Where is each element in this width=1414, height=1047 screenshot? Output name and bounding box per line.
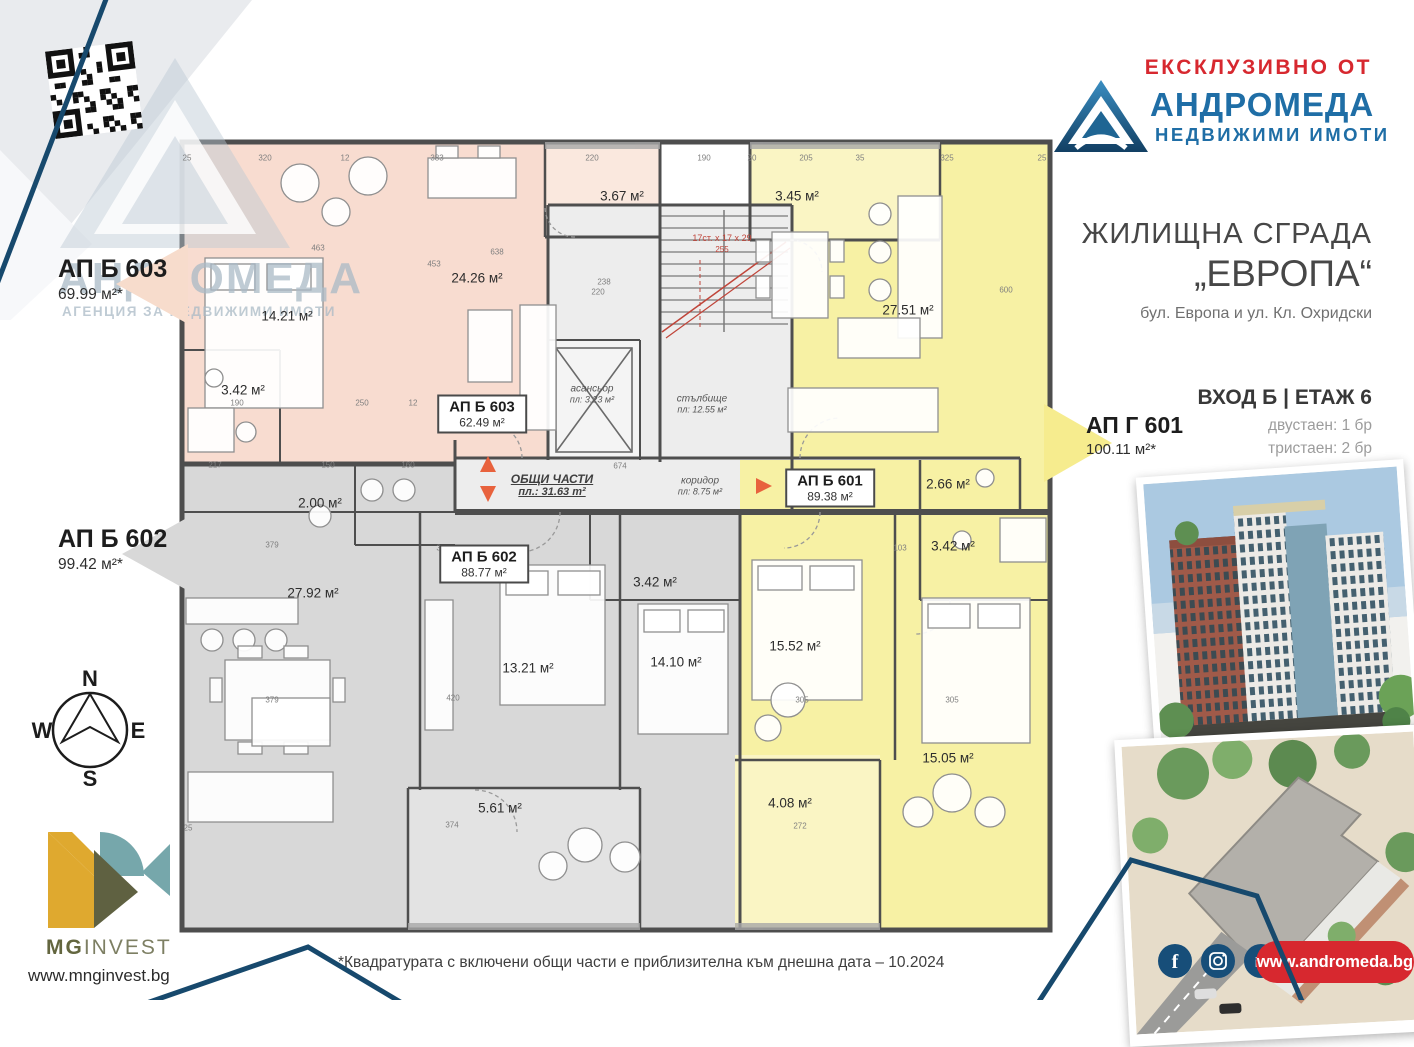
dimension-label: 320 [258,154,271,163]
room-area-label: 5.61 м² [478,801,522,816]
mginvest-logo [48,830,170,930]
dimension-label: 103 [893,544,906,553]
dimension-label: 420 [446,694,459,703]
facebook-icon[interactable]: f [1158,944,1192,978]
stair-dim-text: 255 [692,245,751,255]
callout-id: АП Б 602 [58,525,167,554]
mginvest-name-light: INVEST [84,936,172,959]
plan-apartment-box: АП Б 60189.38 м² [785,469,875,508]
flyer-page: { "branding": { "exclusive_label": "ЕКСК… [0,0,1414,1000]
room-area-label: 15.52 м² [769,639,820,654]
common-areas-value: пл.: 31.63 m² [511,486,593,498]
svg-text:f: f [1172,951,1179,973]
stair-note-text: 17ст. х 17 х 29 [692,233,751,245]
exclusive-label: ЕКСКЛУЗИВНО ОТ [1060,56,1372,80]
dimension-label: 150 [321,461,334,470]
room-area-label: 13.21 м² [502,661,553,676]
dimension-label: 305 [945,696,958,705]
svg-text:E: E [131,718,146,743]
dimension-label: 20 [748,154,757,163]
room-area-label: 2.66 м² [926,477,970,492]
stairs-area: пл: 12.55 м² [677,405,727,415]
project-address: бул. Европа и ул. Кл. Охридски [1040,305,1372,323]
room-area-label: 24.26 м² [451,271,502,286]
dimension-label: 305 [795,696,808,705]
plan-apartment-id: АП Б 602 [451,549,517,566]
room-area-label: 14.21 м² [261,309,312,324]
mginvest-name: MGINVEST [46,936,172,960]
dimension-label: 205 [799,154,812,163]
callout-id: АП Б 603 [58,255,167,284]
room-area-label: 27.51 м² [882,303,933,318]
elevator-name: асансьор [570,384,614,395]
floor-plan [175,122,1060,937]
building-render-street-view [1143,466,1414,767]
room-area-label: 3.42 м² [633,575,677,590]
dimension-label: 272 [793,822,806,831]
dimension-label: 250 [355,399,368,408]
instagram-icon[interactable] [1201,944,1235,978]
dimension-label: 190 [697,154,710,163]
dimension-label: 674 [613,462,626,471]
corridor-area: пл: 8.75 м² [678,487,722,497]
dimension-label: 160 [401,461,414,470]
dimension-label: 190 [230,399,243,408]
corridor-name: коридор [678,476,722,487]
mginvest-website[interactable]: www.mnginvest.bg [28,966,170,986]
agency-name: АНДРОМЕДА [1150,86,1374,124]
dimension-label: 638 [490,248,503,257]
building-title: ЖИЛИЩНА СГРАДА [1040,218,1372,251]
svg-text:S: S [83,766,98,788]
agency-website-pill[interactable]: www.andromeda.bg [1256,941,1414,983]
room-area-label: 14.10 м² [650,655,701,670]
corridor-label: коридор пл: 8.75 м² [678,476,722,497]
apartment-callout-b602: АП Б 602 99.42 м²* [58,525,167,574]
plan-apartment-box: АП Б 60288.77 м² [439,545,529,584]
dimension-label: 25 [1038,154,1047,163]
dimension-label: 463 [311,244,324,253]
dimension-label: 238 [597,278,610,287]
dimension-label: 217 [208,461,221,470]
dimension-label: 220 [591,288,604,297]
room-area-label: 15.05 м² [922,751,973,766]
andromeda-logo-icon [1054,80,1148,160]
callout-area: 69.99 м²* [58,286,167,304]
elevator-label: асансьор пл: 3.23 м² [570,384,614,405]
plan-apartment-box: АП Б 60362.49 м² [437,395,527,434]
plan-apartment-area: 89.38 м² [797,490,863,504]
dimension-label: 379 [265,541,278,550]
elevator-area: пл: 3.23 м² [570,395,614,405]
room-area-label: 3.42 м² [221,383,265,398]
project-title-block: ЖИЛИЩНА СГРАДА „ЕВРОПА“ бул. Европа и ул… [1040,218,1372,323]
dimension-label: 12 [409,399,418,408]
room-area-label: 4.08 м² [768,796,812,811]
room-area-label: 27.92 м² [287,586,338,601]
compass-rose: N E S W [30,668,150,788]
building-render-photo-aerial [1114,724,1414,1047]
common-areas-title: ОБЩИ ЧАСТИ [511,472,593,486]
room-area-label: 2.00 м² [298,496,342,511]
stair-count-note: 17ст. х 17 х 29 255 [692,233,751,255]
svg-text:N: N [82,668,98,691]
dimension-label: 383 [430,154,443,163]
dimension-label: 35 [856,154,865,163]
dimension-label: 379 [265,696,278,705]
area-disclaimer: *Квадратурата с включени общи части е пр… [338,954,944,972]
plan-apartment-id: АП Б 601 [797,473,863,490]
dimension-label: 453 [427,260,440,269]
common-areas-label: ОБЩИ ЧАСТИ пл.: 31.63 m² [511,472,593,498]
stairs-name: стълбище [677,394,727,405]
svg-text:W: W [32,718,53,743]
agency-tagline: НЕДВИЖИМИ ИМОТИ [1155,124,1390,146]
dimension-label: 325 [940,154,953,163]
building-name: „ЕВРОПА“ [1040,253,1372,295]
stairs-label: стълбище пл: 12.55 м² [677,394,727,415]
dimension-label: 220 [585,154,598,163]
apartment-callout-g601: АП Г 601 100.11 м²* [1086,412,1183,458]
dimension-label: 12 [341,154,350,163]
callout-area: 99.42 м²* [58,556,167,574]
entrance-floor: ВХОД Б | ЕТАЖ 6 [1040,386,1372,410]
dimension-label: 25 [183,154,192,163]
dimension-label: 25 [184,824,193,833]
plan-apartment-area: 88.77 м² [451,566,517,580]
callout-id: АП Г 601 [1086,412,1183,439]
plan-apartment-area: 62.49 м² [449,416,515,430]
agency-website[interactable]: www.andromeda.bg [1257,953,1413,972]
room-area-label: 3.45 м² [775,189,819,204]
callout-area: 100.11 м²* [1086,441,1183,458]
room-area-label: 3.67 м² [600,189,644,204]
dimension-label: 600 [999,286,1012,295]
qr-code [45,41,143,139]
plan-apartment-id: АП Б 603 [449,399,515,416]
building-render-aerial-view [1122,732,1414,1035]
room-area-label: 3.42 м² [931,539,975,554]
mginvest-name-bold: MG [46,936,84,959]
dimension-label: 374 [445,821,458,830]
apartment-callout-b603: АП Б 603 69.99 м²* [58,255,167,304]
